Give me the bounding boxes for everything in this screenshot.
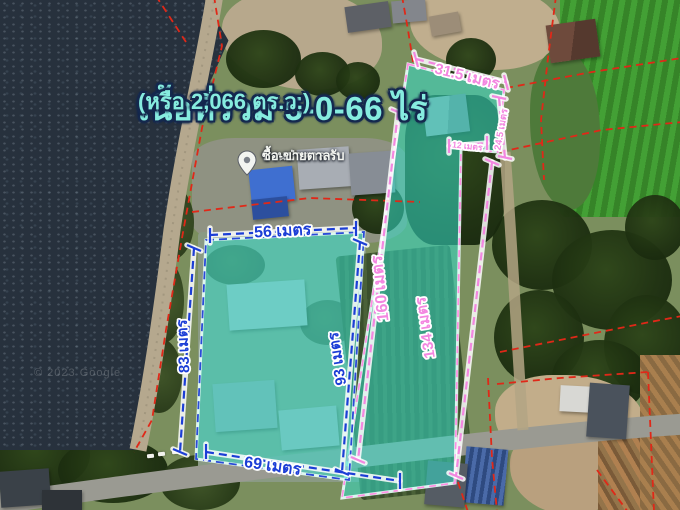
satellite-map: 31.5 เมตร 24.5 เมตร 12 เมตร 160 เมตร 134… bbox=[0, 0, 680, 510]
annotation-layer: 31.5 เมตร 24.5 เมตร 12 เมตร 160 เมตร 134… bbox=[0, 0, 680, 510]
measurement-inner-top: 56 เมตร bbox=[254, 221, 312, 241]
measurement-inner-left: 83 เมตร bbox=[174, 318, 194, 373]
area-subtitle: (หรือ 2,066 ตร.ว.) bbox=[138, 84, 310, 119]
map-pin-icon bbox=[236, 150, 258, 176]
place-name-line2: ซื้อ-ขายตาล bbox=[262, 148, 330, 163]
google-watermark: © 2023 Google bbox=[34, 367, 121, 379]
